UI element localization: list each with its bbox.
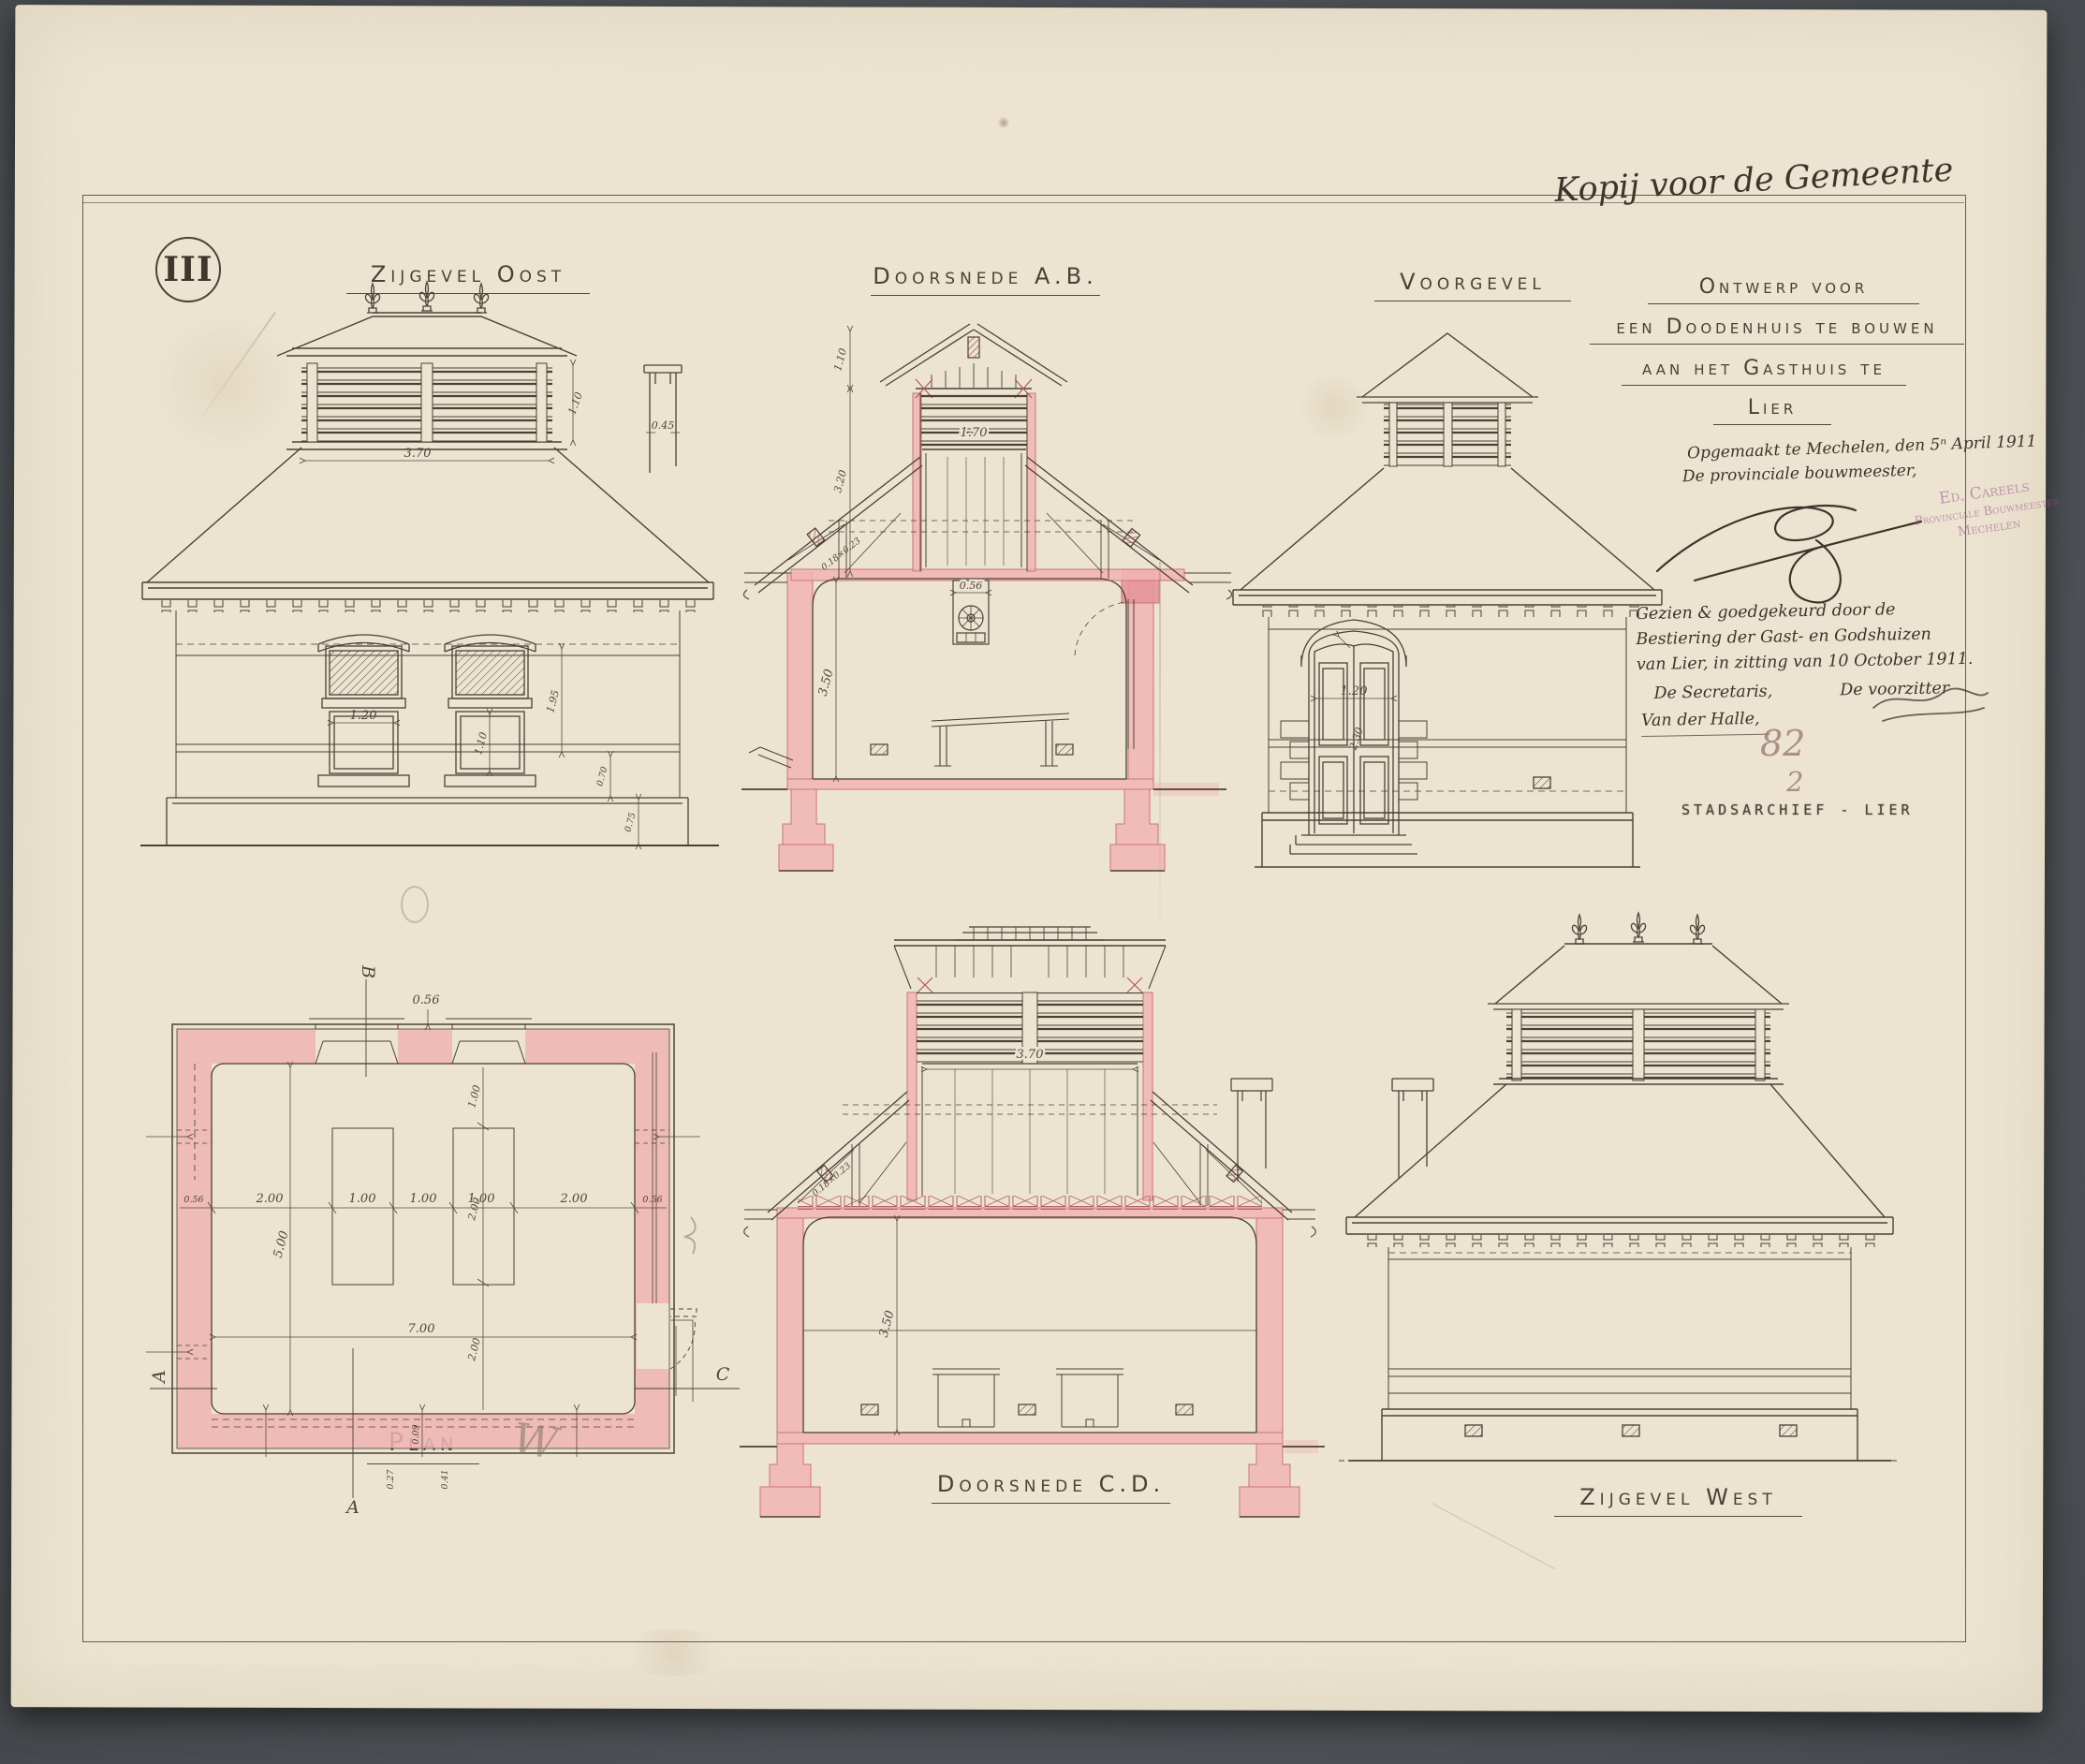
edge-stain (618, 1629, 730, 1676)
chairman-signature (1868, 682, 2008, 733)
dim-plan-seg3: 1.00 (410, 1192, 437, 1206)
floor-plan-drawing: 0.56 B A A C 0.56 2.00 1.00 1.00 1.00 2.… (140, 964, 749, 1507)
plan-mark-b: B (358, 964, 378, 978)
plan-mark-c: C (716, 1364, 730, 1385)
approval-line-3: van Lier, in zitting van 10 October 1911… (1637, 647, 1974, 678)
plan-mark-a-bottom: A (345, 1497, 360, 1518)
west-structure (1339, 913, 1901, 1461)
secretary-label: De Secretaris, (1653, 680, 1772, 707)
label-section-ab: Doorsnede A.B. (871, 264, 1100, 296)
dim-plan-wall-top: 0.56 (413, 993, 440, 1007)
cd-tables (932, 1369, 1123, 1427)
dim-east-lantern-w: 3.70 (404, 447, 432, 461)
ab-pink-masonry (779, 393, 1219, 871)
label-west-elevation: Zijgevel West (1554, 1485, 1802, 1517)
cd-dimensions (897, 1069, 1133, 1430)
east-window-right (445, 635, 536, 786)
dim-east-lantern-h: 1.10 (565, 390, 585, 416)
dim-ab-roof: 3.20 (831, 469, 849, 494)
city-archive-stamp: STADSARCHIEF - LIER (1681, 801, 1962, 818)
dim-cd-shaft: 3.70 (1017, 1048, 1044, 1062)
dim-ab-gable: 1.10 (831, 347, 849, 373)
section-ab-drawing: 1.10 3.20 1.70 0.56 3.50 0.18×0.23 (740, 314, 1283, 932)
dim-cd-room: 3.50 (877, 1309, 898, 1339)
water-stain-2 (1292, 375, 1376, 440)
section-cd-drawing: 3.70 3.50 0.18×0.23 (740, 922, 1329, 1531)
dim-plan-wall-l: 0.56 (184, 1195, 203, 1205)
dim-plan-d3: 0.41 (440, 1469, 450, 1489)
dim-plan-seg1: 2.00 (256, 1192, 284, 1206)
dim-plan-seg2: 1.00 (349, 1192, 376, 1206)
pencil-squiggle (674, 1208, 730, 1264)
dim-plan-v3: 2.00 (465, 1337, 483, 1363)
cd-ceiling-joists (798, 1196, 1262, 1210)
dim-east-frieze: 0.70 (595, 766, 610, 787)
pencil-circle-mark (401, 886, 429, 923)
water-stain (140, 318, 309, 449)
plan-wall-fill (177, 1029, 669, 1448)
pencil-w-mark: W (509, 1413, 560, 1469)
dim-ab-shaft: 1.70 (961, 426, 988, 440)
dim-east-chimney: 0.45 (652, 419, 675, 432)
west-elevation-drawing (1339, 899, 1901, 1479)
cd-pink-masonry (760, 992, 1318, 1517)
plan-mark-a-left: A (149, 1370, 169, 1385)
plan-dimensions (146, 1009, 700, 1457)
title-line-1: Ontwerp voor (1648, 275, 1919, 304)
dim-east-window-w: 1.20 (350, 709, 377, 723)
dim-plan-v1: 1.00 (465, 1084, 483, 1110)
ink-spot (998, 116, 1009, 129)
paper-crease-vertical (1159, 562, 1161, 955)
archive-pencil-number: 82 (1760, 723, 1805, 764)
label-front-elevation: Voorgevel (1374, 270, 1571, 301)
dim-plan-width: 7.00 (408, 1322, 435, 1336)
archive-pencil-number-2: 2 (1786, 766, 1803, 798)
dim-east-window-h: 1.10 (472, 731, 490, 757)
dim-ab-room: 3.50 (816, 668, 837, 698)
dim-east-plinth: 0.75 (624, 812, 639, 833)
dim-plan-wall-r: 0.56 (642, 1195, 662, 1205)
cd-structure (740, 927, 1325, 1517)
dim-front-door-w: 1.20 (1341, 684, 1368, 698)
dim-east-wall: 1.95 (544, 689, 562, 714)
dim-ab-rafter: 0.18×0.23 (819, 536, 862, 573)
dim-plan-seg5: 2.00 (560, 1192, 588, 1206)
title-line-4: Lier (1713, 396, 1831, 425)
dim-ab-vent: 0.56 (960, 580, 983, 592)
dim-plan-d1: 0.09 (411, 1424, 421, 1444)
dim-plan-d2: 0.27 (386, 1468, 396, 1489)
dim-front-door-h: 2.30 (1346, 726, 1365, 752)
dim-plan-depth: 5.00 (272, 1229, 292, 1259)
photograph-backdrop: III Kopij voor de Gemeente Ontwerp voor … (0, 0, 2085, 1764)
